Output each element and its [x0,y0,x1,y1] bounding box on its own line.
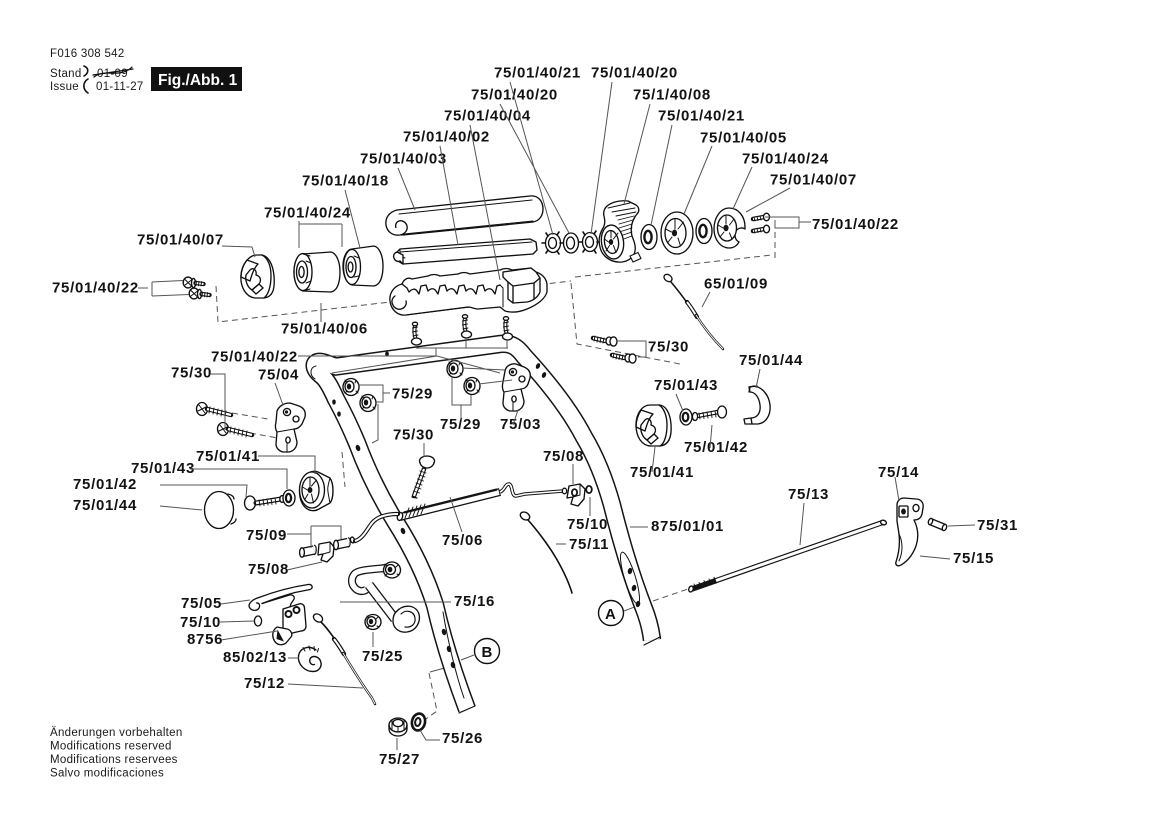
svg-text:75/01/40/22: 75/01/40/22 [211,349,298,366]
svg-text:Salvo modificaciones: Salvo modificaciones [50,768,164,780]
svg-text:85/02/13: 85/02/13 [223,649,287,666]
svg-text:F016 308 542: F016 308 542 [50,48,125,60]
svg-text:Änderungen vorbehalten: Änderungen vorbehalten [50,727,183,739]
svg-text:75/01/43: 75/01/43 [131,460,195,477]
svg-text:75/12: 75/12 [244,675,285,692]
svg-text:75/01/40/02: 75/01/40/02 [403,129,490,146]
svg-text:75/10: 75/10 [567,516,608,533]
svg-text:75/08: 75/08 [543,448,584,465]
svg-text:75/01/41: 75/01/41 [196,448,260,465]
svg-text:75/09: 75/09 [246,527,287,544]
svg-text:75/30: 75/30 [648,339,689,356]
svg-text:8756: 8756 [187,631,223,648]
svg-text:75/26: 75/26 [442,730,483,747]
svg-text:75/01/40/21: 75/01/40/21 [494,65,581,82]
svg-text:75/01/40/06: 75/01/40/06 [281,321,368,338]
svg-text:75/01/40/24: 75/01/40/24 [742,151,829,168]
svg-text:75/04: 75/04 [258,367,299,384]
svg-text:75/01/40/18: 75/01/40/18 [302,173,389,190]
svg-text:75/08: 75/08 [248,561,289,578]
svg-text:875/01/01: 875/01/01 [651,518,724,535]
svg-text:75/01/40/07: 75/01/40/07 [770,172,857,189]
svg-text:Fig./Abb. 1: Fig./Abb. 1 [158,72,238,89]
svg-text:75/16: 75/16 [454,593,495,610]
svg-text:75/01/40/22: 75/01/40/22 [52,280,139,297]
svg-text:75/27: 75/27 [379,751,420,768]
svg-text:75/11: 75/11 [569,536,609,553]
svg-text:Issue: Issue [50,81,79,93]
svg-text:65/01/09: 65/01/09 [704,276,768,293]
svg-text:75/30: 75/30 [171,365,212,382]
svg-text:75/05: 75/05 [181,595,222,612]
svg-text:75/01/40/05: 75/01/40/05 [700,130,787,147]
svg-text:75/06: 75/06 [442,532,483,549]
svg-text:75/01/44: 75/01/44 [73,497,137,514]
svg-text:01-11-27: 01-11-27 [96,81,144,93]
svg-text:75/01/40/24: 75/01/40/24 [264,205,351,222]
svg-text:Modifications reserved: Modifications reserved [50,741,172,753]
svg-text:75/01/40/22: 75/01/40/22 [812,216,899,233]
svg-text:75/29: 75/29 [392,386,433,403]
svg-text:75/01/44: 75/01/44 [739,352,803,369]
svg-text:75/25: 75/25 [362,648,403,665]
svg-text:75/01/41: 75/01/41 [630,464,694,481]
svg-text:75/03: 75/03 [500,416,541,433]
svg-text:A: A [605,606,617,623]
svg-text:75/01/40/20: 75/01/40/20 [591,65,678,82]
svg-text:75/01/40/20: 75/01/40/20 [471,87,558,104]
svg-text:75/01/42: 75/01/42 [73,476,137,493]
svg-text:75/1/40/08: 75/1/40/08 [633,87,711,104]
svg-text:75/13: 75/13 [788,486,829,503]
svg-text:75/14: 75/14 [878,464,919,481]
svg-text:75/01/40/21: 75/01/40/21 [658,108,745,125]
svg-text:75/01/40/03: 75/01/40/03 [360,151,447,168]
svg-text:75/31: 75/31 [977,517,1018,534]
svg-text:B: B [482,644,494,661]
svg-text:75/10: 75/10 [180,614,221,631]
svg-text:75/01/43: 75/01/43 [654,377,718,394]
svg-text:75/15: 75/15 [953,550,994,567]
svg-text:75/30: 75/30 [393,427,434,444]
svg-text:75/01/42: 75/01/42 [684,439,748,456]
svg-text:Modifications reservees: Modifications reservees [50,754,178,766]
svg-text:Stand: Stand [50,68,82,80]
svg-text:75/01/40/07: 75/01/40/07 [137,232,224,249]
